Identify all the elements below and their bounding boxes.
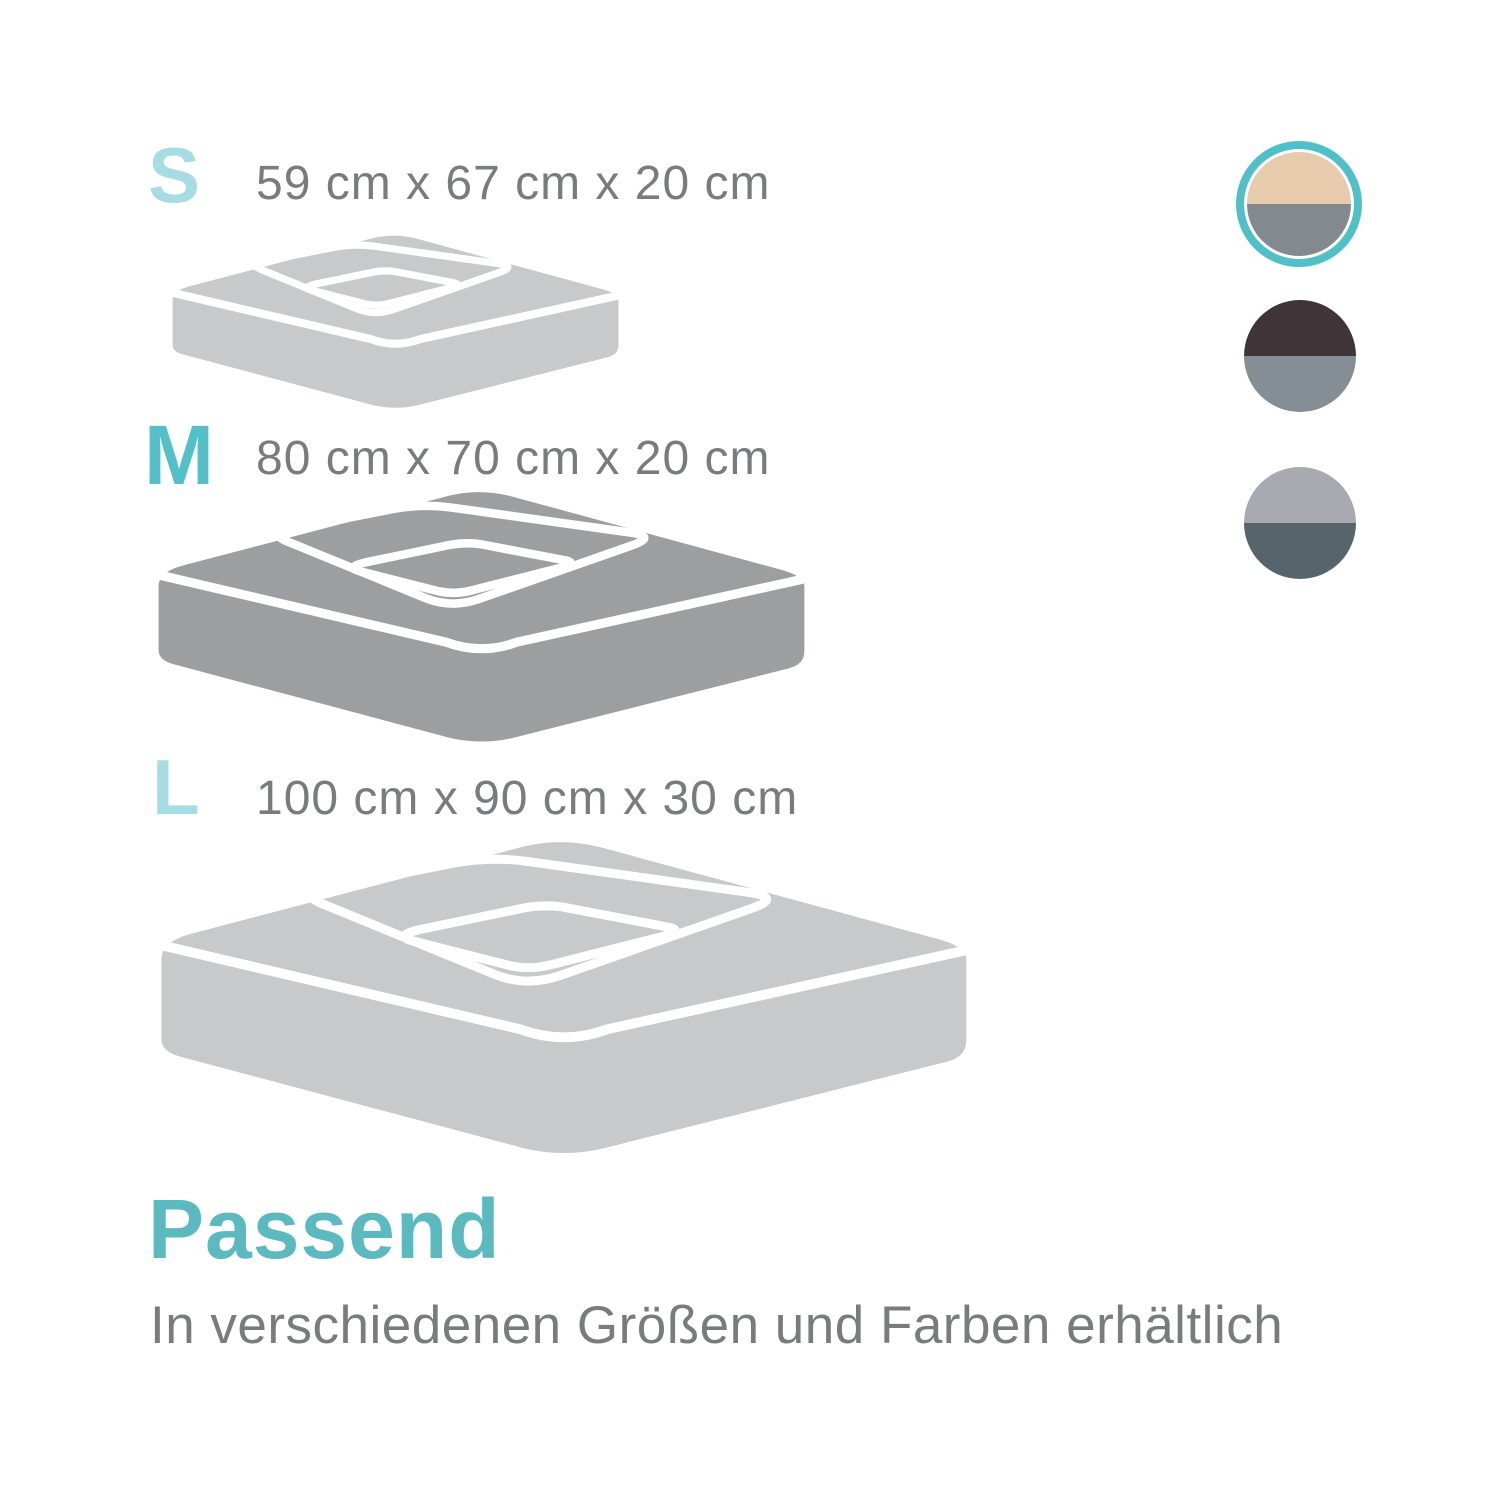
pet-bed-illustration-s [165, 230, 635, 415]
swatch-top-half [1244, 300, 1356, 356]
size-label-l: L [152, 748, 200, 826]
swatch-bottom-half [1244, 523, 1356, 579]
color-option-beige-grey-selected [1236, 141, 1362, 267]
footer-subtitle: In verschiedenen Größen und Farben erhäl… [150, 1299, 1283, 1352]
swatch-bottom-half [1244, 356, 1356, 412]
size-dimensions-s: 59 cm x 67 cm x 20 cm [256, 160, 770, 208]
footer-heading: Passend [148, 1187, 501, 1271]
color-option-dark-brown-grey [1244, 300, 1356, 412]
swatch-bottom-half [1247, 204, 1351, 256]
color-swatch-beige-grey [1247, 152, 1351, 256]
size-infographic: S 59 cm x 67 cm x 20 cm M 80 cm x 70 cm … [0, 0, 1500, 1500]
bed-body-s [173, 236, 619, 408]
bed-body-m [159, 492, 805, 741]
swatch-top-half [1247, 152, 1351, 204]
color-option-light-grey-slate [1244, 467, 1356, 579]
size-dimensions-m: 80 cm x 70 cm x 20 cm [256, 435, 770, 483]
bed-body-l [161, 842, 966, 1153]
swatch-top-half [1244, 467, 1356, 523]
pet-bed-illustration-m [148, 484, 828, 752]
size-label-s: S [148, 136, 200, 214]
pet-bed-illustration-l [148, 832, 996, 1166]
size-dimensions-l: 100 cm x 90 cm x 30 cm [256, 775, 798, 823]
